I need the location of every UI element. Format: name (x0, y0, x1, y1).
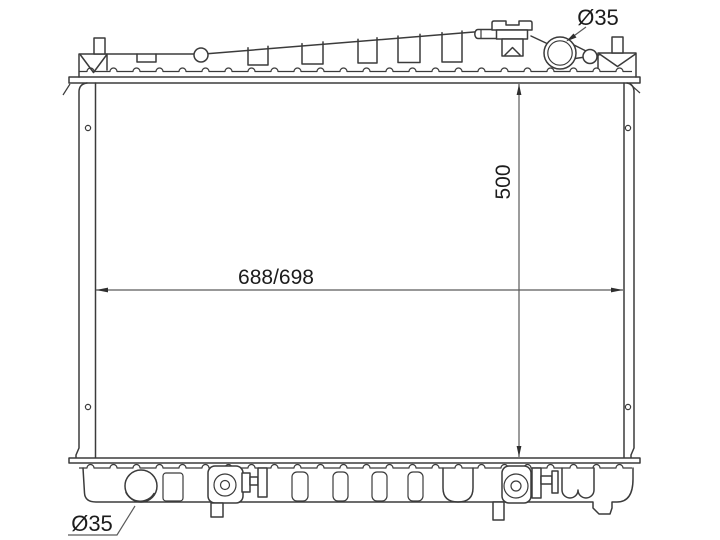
bottom-flange (69, 458, 640, 463)
bottom-slot-5 (408, 472, 423, 501)
filler-cap-skirt (497, 30, 528, 39)
bottom-slot-1 (163, 473, 183, 501)
clamp-left (242, 468, 267, 497)
top-tank-slope (204, 32, 480, 55)
left-panel-hole-top (85, 125, 90, 130)
top-pivot-circle (194, 48, 208, 62)
top-left-tab (94, 38, 105, 54)
top-serration (79, 68, 632, 72)
core-width-label: 688/698 (238, 266, 314, 289)
dimension-core-height: 500 (492, 84, 521, 457)
radiator-drawing-svg: 500 688/698 Ø35 Ø35 (0, 0, 720, 540)
mount-left-body (208, 466, 243, 503)
clamp-right-bar1 (532, 468, 541, 498)
bottom-pocket-center (443, 468, 473, 502)
bottom-slot-3 (333, 472, 348, 501)
mounting-bracket-left (208, 466, 243, 517)
mount-left-pin (211, 503, 223, 517)
clamp-right (532, 468, 558, 498)
top-right-tab (612, 37, 623, 53)
inlet-port (544, 37, 576, 69)
core-height-label: 500 (492, 164, 515, 199)
bottom-slot-4 (372, 472, 387, 501)
top-channel-1 (137, 54, 156, 62)
top-right-v-brace (600, 54, 636, 67)
bottom-serration (79, 465, 632, 468)
left-side-panel (63, 83, 96, 458)
right-panel-hole-top (625, 125, 630, 130)
clamp-left-bar1 (242, 473, 250, 492)
top-tank-link-line (531, 36, 547, 44)
filler-cap (492, 21, 532, 56)
clamp-right-bar2 (552, 471, 558, 493)
width-arrow-right (611, 288, 623, 293)
left-panel-hole-bottom (85, 404, 90, 409)
overflow-pipe (475, 30, 498, 39)
height-arrow-down (517, 446, 522, 457)
right-bracket-pin (630, 84, 640, 93)
inlet-pipe-outer (544, 37, 576, 69)
inlet-diameter-label: Ø35 (577, 5, 619, 30)
callout-outlet-diameter: Ø35 (68, 506, 135, 536)
callout-inlet-diameter: Ø35 (566, 5, 619, 42)
left-panel-outer-edge (76, 83, 87, 458)
width-arrow-left (96, 288, 108, 293)
mounting-bracket-right (493, 466, 531, 520)
radiator-diagram: 500 688/698 Ø35 Ø35 (0, 0, 720, 540)
dimension-core-width: 688/698 (96, 266, 623, 292)
small-port-circle (583, 50, 597, 64)
right-panel-hole-bottom (625, 404, 630, 409)
top-flange (69, 77, 640, 83)
clamp-left-bar2 (258, 468, 267, 497)
clamp-right-bridge (541, 476, 552, 484)
top-tank (69, 21, 640, 83)
mount-right-pin (493, 502, 504, 520)
bottom-pocket-right (562, 468, 594, 498)
clamp-left-bridge (250, 477, 258, 485)
bottom-tank-outline (83, 468, 633, 514)
top-channel-6 (442, 31, 462, 62)
left-bracket-pin (63, 84, 70, 95)
right-panel-outer-edge (627, 83, 634, 458)
outlet-diameter-label: Ø35 (71, 511, 113, 536)
outlet-port (125, 470, 157, 502)
filler-cap-top (492, 21, 532, 30)
right-side-panel (624, 83, 640, 458)
bottom-tank (69, 458, 640, 520)
height-arrow-up (517, 84, 522, 95)
bottom-slot-2 (292, 472, 308, 501)
